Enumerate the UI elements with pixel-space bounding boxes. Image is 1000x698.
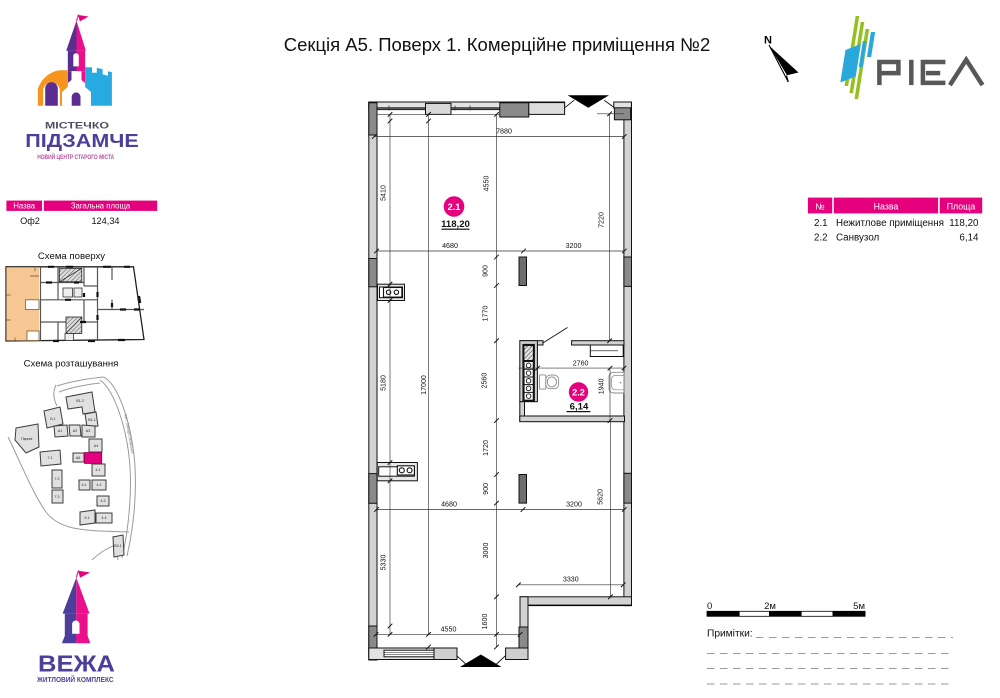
svg-text:2м: 2м [764, 601, 776, 612]
svg-text:7880: 7880 [496, 128, 512, 136]
svg-text:3200: 3200 [566, 242, 582, 250]
svg-text:ВЕЖА: ВЕЖА [38, 651, 115, 677]
svg-text:2.2: 2.2 [814, 233, 828, 244]
svg-text:А3: А3 [86, 429, 90, 433]
svg-text:Оф2: Оф2 [20, 216, 40, 226]
svg-text:118,20: 118,20 [441, 219, 470, 230]
svg-text:124,34: 124,34 [91, 216, 119, 226]
svg-text:Схема розташування: Схема розташування [24, 358, 119, 369]
svg-text:4.2: 4.2 [97, 483, 102, 487]
svg-text:4.1: 4.1 [96, 468, 101, 472]
svg-text:Назва: Назва [13, 201, 36, 210]
svg-text:А1: А1 [58, 429, 62, 433]
svg-text:4550: 4550 [441, 625, 457, 633]
svg-text:6,14: 6,14 [570, 402, 589, 413]
svg-text:5180: 5180 [379, 375, 387, 391]
svg-text:6.1: 6.1 [85, 516, 90, 520]
svg-text:1770: 1770 [482, 306, 490, 322]
svg-text:А6: А6 [76, 456, 80, 460]
svg-text:4.3: 4.3 [101, 499, 106, 503]
svg-text:2760: 2760 [573, 360, 589, 368]
svg-text:Б.1: Б.1 [50, 417, 55, 421]
svg-text:7.3: 7.3 [55, 495, 60, 499]
svg-text:5330: 5330 [379, 555, 387, 571]
svg-text:5.1: 5.1 [82, 483, 87, 487]
svg-text:3000: 3000 [482, 543, 490, 559]
svg-text:3330: 3330 [563, 576, 579, 584]
svg-text:В0.1: В0.1 [114, 544, 121, 548]
svg-text:В1.2: В1.2 [76, 399, 83, 403]
svg-text:1600: 1600 [481, 614, 489, 630]
svg-text:ЖИТЛОВИЙ КОМПЛЕКС: ЖИТЛОВИЙ КОМПЛЕКС [36, 675, 113, 684]
svg-text:Нежитлове приміщення: Нежитлове приміщення [836, 218, 944, 229]
svg-text:118,20: 118,20 [949, 218, 979, 229]
svg-text:Санвузол: Санвузол [836, 233, 880, 244]
svg-text:2.1: 2.1 [814, 218, 828, 229]
svg-text:0: 0 [707, 601, 712, 612]
svg-text:2560: 2560 [481, 373, 489, 389]
svg-text:А2: А2 [73, 429, 77, 433]
svg-text:2.2: 2.2 [572, 387, 585, 397]
svg-text:№: № [815, 201, 824, 211]
svg-text:Примітки:: Примітки: [707, 629, 753, 640]
svg-text:3200: 3200 [566, 500, 582, 508]
svg-text:N: N [764, 35, 772, 47]
svg-text:5410: 5410 [379, 185, 387, 201]
svg-text:4.4: 4.4 [102, 516, 107, 520]
svg-text:7220: 7220 [598, 212, 606, 228]
svg-text:2.1: 2.1 [448, 202, 461, 212]
svg-text:4550: 4550 [483, 176, 491, 192]
svg-text:1720: 1720 [482, 440, 490, 456]
svg-text:900: 900 [482, 483, 490, 495]
svg-text:900: 900 [482, 265, 490, 277]
svg-text:Паркінг: Паркінг [21, 437, 33, 441]
svg-text:17000: 17000 [420, 375, 428, 395]
svg-text:Схема поверху: Схема поверху [38, 251, 105, 262]
svg-text:5м: 5м [853, 601, 865, 612]
svg-text:Секція А5. Поверх 1. Комерційн: Секція А5. Поверх 1. Комерційне приміщен… [284, 34, 711, 55]
svg-text:1940: 1940 [598, 378, 606, 394]
svg-text:НОВИЙ ЦЕНТР СТАРОГО МІСТА: НОВИЙ ЦЕНТР СТАРОГО МІСТА [37, 152, 114, 161]
svg-text:В1.1: В1.1 [88, 418, 95, 422]
svg-text:Площа: Площа [947, 201, 976, 211]
svg-text:6,14: 6,14 [959, 233, 979, 244]
svg-text:4680: 4680 [441, 500, 457, 508]
svg-text:Назва: Назва [874, 201, 899, 211]
svg-text:Загальна площа: Загальна площа [71, 201, 131, 210]
svg-text:5620: 5620 [597, 489, 605, 505]
svg-text:7.1: 7.1 [48, 456, 53, 460]
svg-text:А4: А4 [94, 444, 98, 448]
svg-text:7.2: 7.2 [55, 477, 60, 481]
svg-text:4680: 4680 [442, 242, 458, 250]
svg-text:ПІДЗАМЧЕ: ПІДЗАМЧЕ [25, 130, 139, 151]
